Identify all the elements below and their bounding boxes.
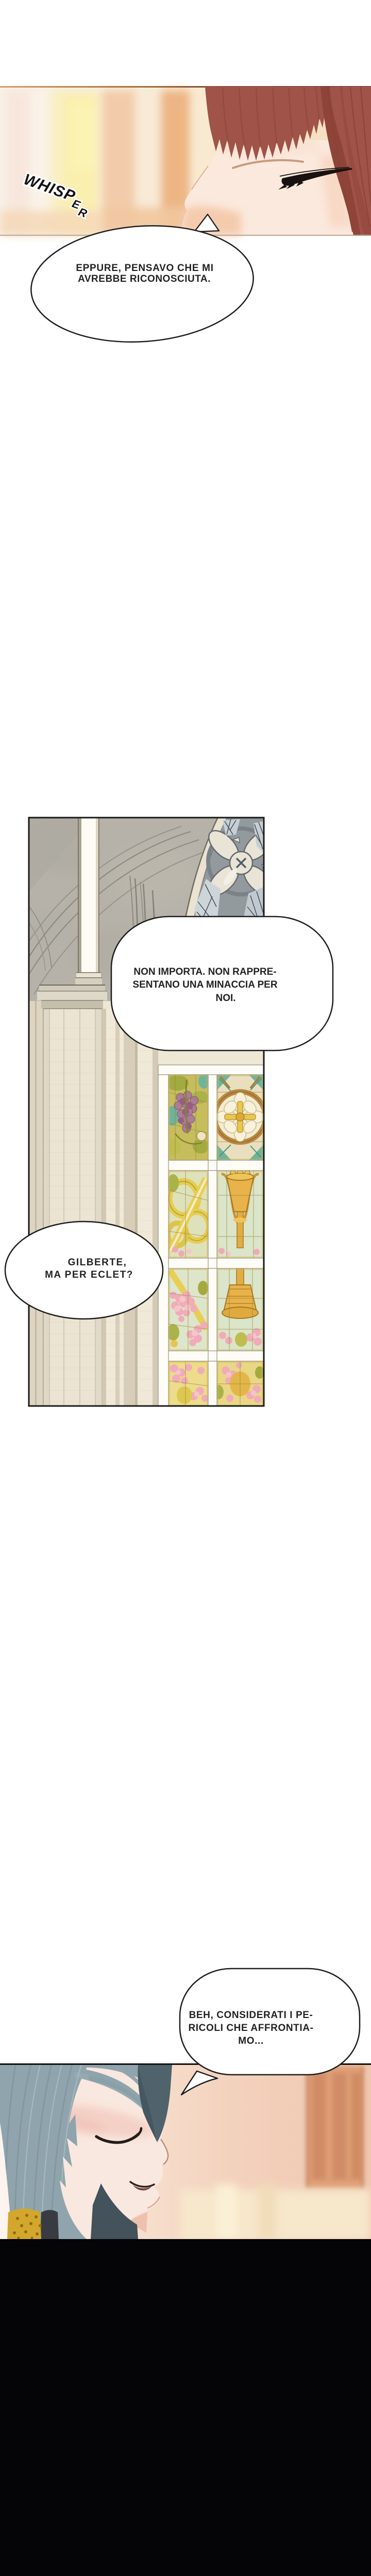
svg-text:AVREBBE RICONOSCIUTA.: AVREBBE RICONOSCIUTA. bbox=[78, 274, 211, 284]
svg-text:MO...: MO... bbox=[238, 2036, 263, 2046]
svg-text:GILBERTE,: GILBERTE, bbox=[68, 1257, 127, 1268]
svg-text:NOI.: NOI. bbox=[215, 993, 235, 1004]
svg-text:SENTANO UNA MINACCIA PER: SENTANO UNA MINACCIA PER bbox=[132, 979, 277, 990]
svg-text:MA PER ECLET?: MA PER ECLET? bbox=[45, 1269, 133, 1280]
svg-text:BEH, CONSIDERATI I PE-: BEH, CONSIDERATI I PE- bbox=[189, 2010, 313, 2021]
svg-text:NON IMPORTA. NON RAPPRE-: NON IMPORTA. NON RAPPRE- bbox=[133, 967, 276, 977]
svg-text:RICOLI CHE AFFRONTIA-: RICOLI CHE AFFRONTIA- bbox=[188, 2023, 313, 2033]
svg-text:EPPURE, PENSAVO CHE MI: EPPURE, PENSAVO CHE MI bbox=[76, 263, 213, 274]
